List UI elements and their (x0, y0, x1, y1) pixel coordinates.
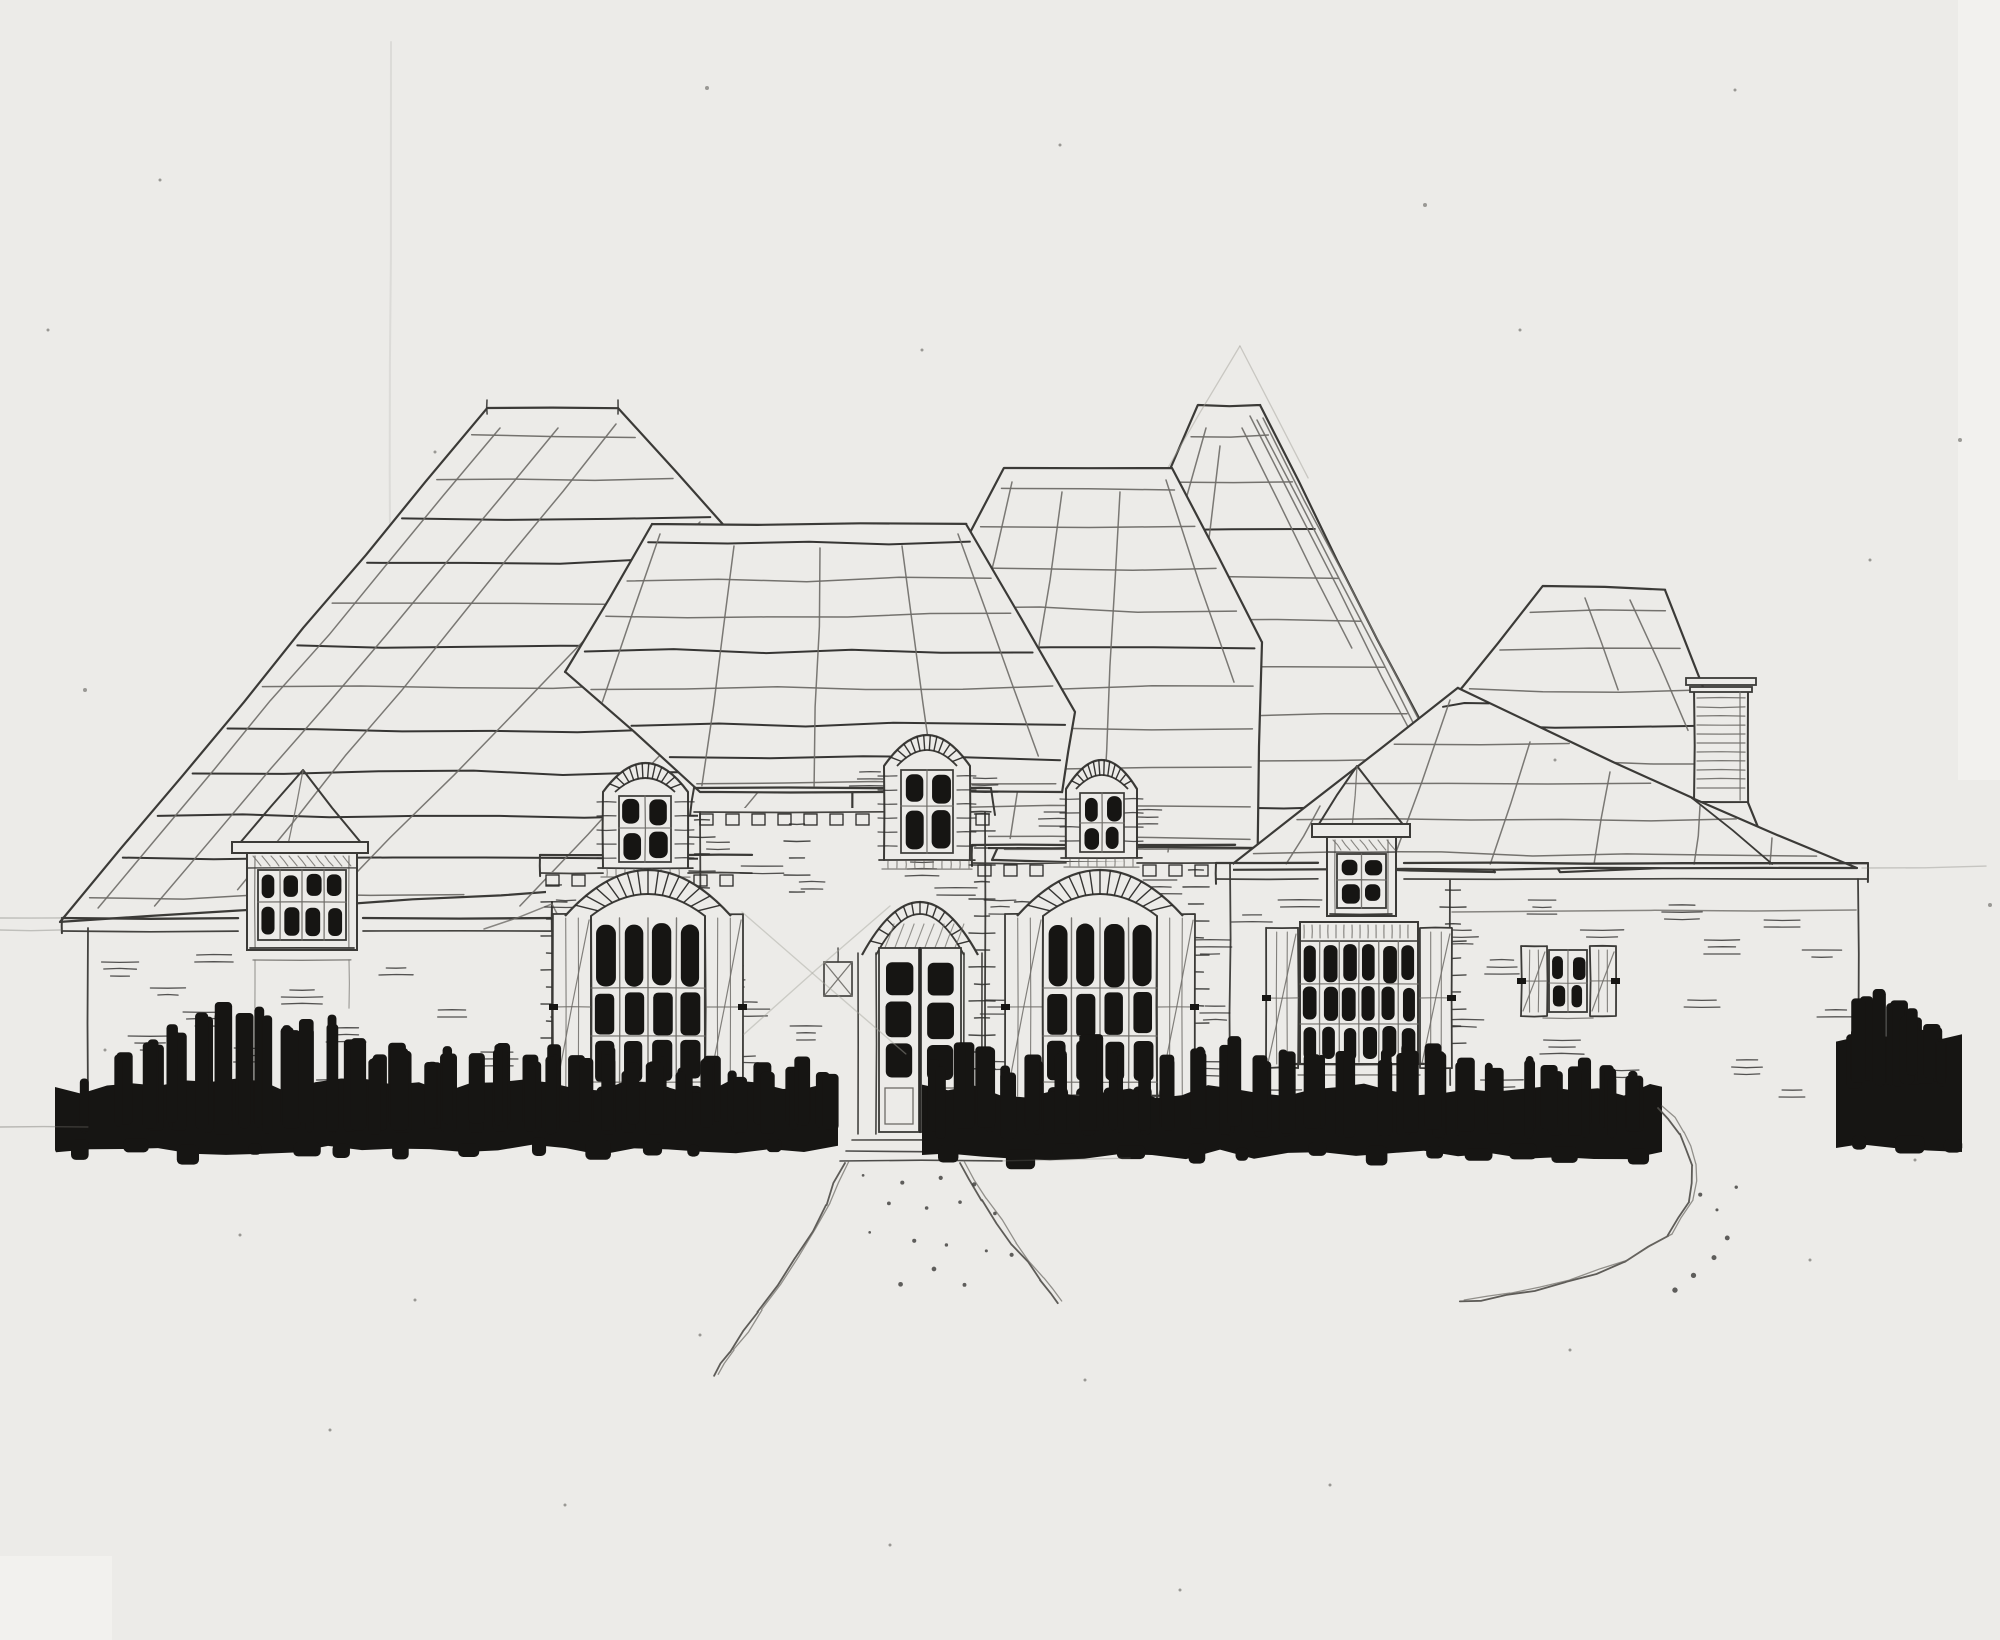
entry-dormer (878, 735, 976, 869)
architectural-elevation-sketch (0, 0, 2000, 1640)
chimney (1686, 678, 1756, 802)
small-window (1517, 946, 1620, 1019)
left-dormer (597, 763, 694, 877)
